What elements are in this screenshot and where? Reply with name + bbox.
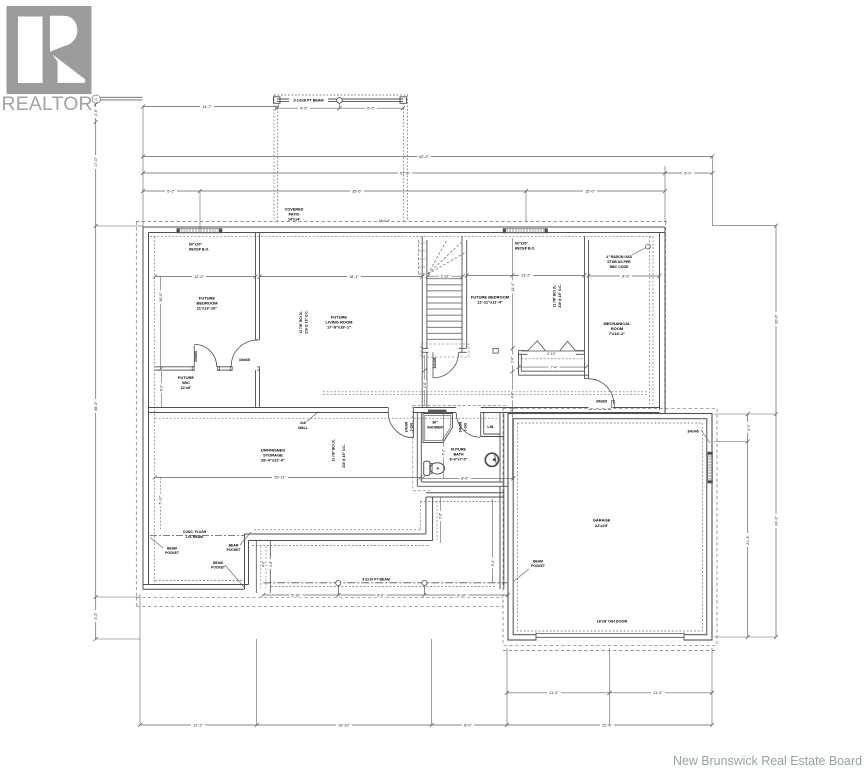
svg-text:28'-4"x22'-0": 28'-4"x22'-0"	[261, 458, 285, 463]
svg-text:11'x6': 11'x6'	[181, 385, 192, 390]
svg-text:4'-3": 4'-3"	[94, 612, 98, 620]
svg-text:2x6: 2x6	[300, 421, 306, 425]
svg-text:BEAM: BEAM	[213, 561, 223, 565]
svg-text:3/4x6/8: 3/4x6/8	[459, 421, 463, 432]
svg-text:210 @ 16" O.C.: 210 @ 16" O.C.	[305, 310, 309, 334]
svg-text:4'-6": 4'-6"	[423, 382, 427, 388]
svg-text:2-3x8: 2-3x8	[464, 423, 468, 431]
svg-text:POCKET: POCKET	[531, 564, 545, 568]
svg-text:62'-0": 62'-0"	[419, 155, 429, 159]
svg-text:3-1/2x8 PT BEAM: 3-1/2x8 PT BEAM	[293, 99, 323, 103]
svg-text:4" RADON GAS: 4" RADON GAS	[606, 255, 633, 259]
svg-text:STUB AS PER: STUB AS PER	[607, 260, 631, 264]
svg-text:210 @ 16" O.C.: 210 @ 16" O.C.	[558, 284, 562, 308]
svg-text:9'-4": 9'-4"	[491, 559, 495, 566]
svg-text:8'-3": 8'-3"	[622, 274, 630, 278]
svg-text:14'-7": 14'-7"	[202, 105, 212, 109]
svg-text:CONC. FLUSH: CONC. FLUSH	[183, 530, 207, 534]
svg-text:22'-0": 22'-0"	[602, 723, 612, 727]
svg-text:10'-0": 10'-0"	[159, 292, 163, 302]
svg-text:16'-10": 16'-10"	[338, 723, 350, 727]
svg-text:4'-0": 4'-0"	[262, 561, 266, 567]
svg-text:8'-0": 8'-0"	[461, 477, 469, 481]
svg-text:11'x13'-10": 11'x13'-10"	[197, 306, 218, 311]
svg-text:REALTOR: REALTOR	[2, 93, 93, 115]
svg-text:POCKET: POCKET	[165, 551, 179, 555]
svg-text:BEAM: BEAM	[229, 544, 239, 548]
svg-text:12'-11"x11'-4": 12'-11"x11'-4"	[477, 300, 503, 305]
svg-text:3/4x6/8: 3/4x6/8	[239, 358, 250, 362]
svg-text:POCKET: POCKET	[211, 566, 225, 570]
svg-text:17'-0": 17'-0"	[94, 157, 98, 167]
svg-text:11'-4": 11'-4"	[511, 282, 515, 292]
svg-text:SHOWER: SHOWER	[427, 426, 443, 430]
svg-text:LVL BEAM: LVL BEAM	[186, 535, 203, 539]
svg-text:20'-6": 20'-6"	[774, 314, 778, 324]
svg-text:18'-1": 18'-1"	[349, 275, 359, 279]
svg-text:POCKET: POCKET	[227, 548, 241, 552]
svg-text:3-2x10 PT BEAM: 3-2x10 PT BEAM	[362, 578, 390, 582]
svg-text:8'-0": 8'-0"	[464, 723, 472, 727]
svg-text:36'-0": 36'-0"	[94, 401, 98, 411]
svg-text:2'-6": 2'-6"	[511, 356, 515, 363]
svg-text:3/4x6/8: 3/4x6/8	[596, 400, 607, 404]
svg-text:7'-4": 7'-4"	[551, 365, 559, 369]
svg-text:6'-0": 6'-0"	[300, 107, 308, 111]
svg-text:12'-0": 12'-0"	[194, 275, 204, 279]
svg-text:17'-8"x16'-1": 17'-8"x16'-1"	[327, 325, 351, 330]
svg-text:3'-0": 3'-0"	[747, 423, 751, 431]
svg-text:6'-0": 6'-0"	[367, 107, 375, 111]
svg-text:BEAM: BEAM	[533, 560, 543, 564]
svg-text:14'x14': 14'x14'	[379, 219, 390, 223]
svg-text:16'x8' O/H DOOR: 16'x8' O/H DOOR	[597, 620, 628, 624]
svg-text:New Brunswick Real Estate Boar: New Brunswick Real Estate Board	[673, 753, 862, 768]
svg-text:4'-6": 4'-6"	[269, 561, 273, 567]
svg-text:29'-11": 29'-11"	[274, 476, 286, 480]
svg-text:36": 36"	[432, 421, 438, 425]
svg-text:5'-10": 5'-10"	[159, 495, 163, 504]
svg-text:13'-2": 13'-2"	[521, 274, 531, 278]
svg-text:15'-0": 15'-0"	[585, 189, 595, 193]
svg-text:11 7/8" BCI JL.: 11 7/8" BCI JL.	[332, 439, 336, 462]
svg-text:8'-4"x7'-0": 8'-4"x7'-0"	[450, 458, 468, 462]
svg-text:2'-4": 2'-4"	[94, 108, 98, 116]
svg-text:11 7/8" BCI JL.: 11 7/8" BCI JL.	[299, 311, 303, 334]
svg-text:3/4x4/6: 3/4x4/6	[687, 430, 698, 434]
svg-text:BEAM: BEAM	[167, 547, 177, 551]
svg-text:2'-6": 2'-6"	[439, 513, 443, 519]
svg-text:11 7/8" BCI JL.: 11 7/8" BCI JL.	[553, 285, 557, 308]
svg-text:22'x23': 22'x23'	[595, 523, 608, 528]
svg-text:NBC CODE: NBC CODE	[610, 265, 629, 269]
svg-text:35'-6": 35'-6"	[352, 189, 362, 193]
svg-text:14'x14': 14'x14'	[288, 218, 300, 222]
svg-text:6'-2": 6'-2"	[160, 384, 164, 391]
svg-text:21'-3": 21'-3"	[746, 535, 750, 545]
svg-text:COVERED: COVERED	[285, 208, 304, 212]
svg-text:210 @ 16" O.C.: 210 @ 16" O.C.	[342, 444, 346, 468]
svg-text:3/4x6/8: 3/4x6/8	[404, 421, 408, 432]
svg-text:60"x20": 60"x20"	[189, 243, 202, 247]
svg-text:7'-0": 7'-0"	[442, 448, 446, 456]
svg-text:BATH: BATH	[454, 453, 464, 457]
svg-text:2'-10": 2'-10"	[441, 274, 450, 278]
svg-text:3/4x6/8: 3/4x6/8	[433, 357, 437, 368]
svg-text:PATIO: PATIO	[288, 213, 299, 217]
svg-text:11'-0": 11'-0"	[549, 691, 559, 695]
svg-text:11'-0": 11'-0"	[653, 691, 663, 695]
svg-text:2'-10": 2'-10"	[547, 352, 556, 356]
svg-text:2-3x8: 2-3x8	[409, 423, 413, 431]
svg-text:8'-0": 8'-0"	[377, 593, 385, 597]
svg-text:12'-2": 12'-2"	[193, 723, 203, 727]
svg-text:LIN.: LIN.	[487, 425, 494, 429]
svg-text:8'-10": 8'-10"	[291, 593, 301, 597]
svg-text:7'x18'-2": 7'x18'-2"	[609, 331, 625, 336]
svg-text:FUTURE: FUTURE	[451, 448, 466, 452]
svg-text:WALL: WALL	[298, 426, 308, 430]
svg-text:3/4x6/8: 3/4x6/8	[194, 351, 198, 362]
svg-text:24'-3": 24'-3"	[774, 516, 778, 526]
svg-text:8'-10": 8'-10"	[457, 593, 467, 597]
svg-text:GARAGE: GARAGE	[593, 518, 611, 523]
svg-text:RECEP B.O.: RECEP B.O.	[189, 248, 209, 252]
svg-text:57'-0": 57'-0"	[400, 171, 410, 175]
svg-text:6'-2": 6'-2"	[167, 189, 175, 193]
svg-text:RECEP B.O.: RECEP B.O.	[515, 247, 535, 251]
svg-text:60"x20": 60"x20"	[515, 242, 528, 246]
svg-text:5'-0": 5'-0"	[684, 171, 692, 175]
